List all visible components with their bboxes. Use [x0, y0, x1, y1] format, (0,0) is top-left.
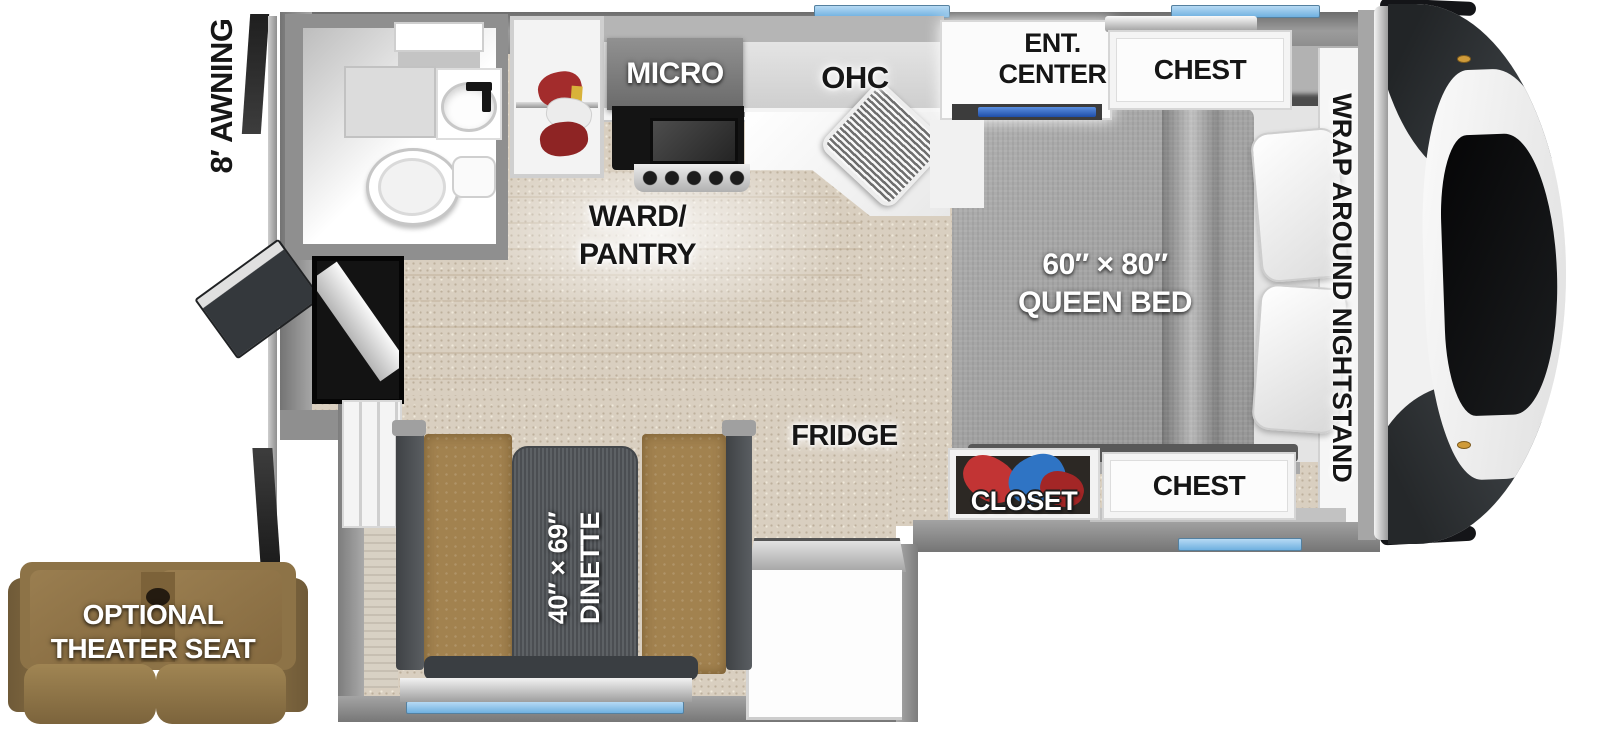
ent-center-accent — [978, 107, 1096, 117]
theater-line2: THEATER SEAT — [51, 633, 256, 664]
slideout-step-fascia — [400, 678, 692, 702]
theater-seat-bottom-cushion — [24, 664, 156, 724]
theater-line1: OPTIONAL — [83, 599, 224, 630]
dinette-name-text: DINETTE — [575, 512, 605, 624]
ent-line2: CENTER — [998, 59, 1106, 89]
dinette-bench-back — [396, 428, 424, 670]
bathroom-cabinet — [394, 22, 484, 52]
toilet-seat — [378, 158, 446, 216]
ohc-label: OHC — [800, 60, 910, 96]
ent-center-label: ENT. CENTER — [985, 28, 1120, 90]
ward-pantry-line1: WARD/ — [589, 200, 687, 233]
fridge — [746, 570, 902, 720]
awning-arm-bottom — [252, 448, 281, 580]
entry-side-panel — [342, 400, 402, 528]
toilet-tank — [452, 156, 496, 198]
dinette-bench — [424, 434, 512, 674]
bed-name-text: QUEEN BED — [1018, 286, 1192, 319]
theater-seat-bottom-cushion — [156, 664, 286, 724]
chest-top-label: CHEST — [1154, 54, 1246, 86]
wall-bottom-bedroom — [913, 520, 1380, 552]
dinette-label: 40″ × 69″ DINETTE — [542, 458, 608, 678]
theater-seat-label: OPTIONAL THEATER SEAT — [18, 598, 288, 665]
microwave: MICRO — [607, 38, 743, 110]
closet-label: CLOSET — [948, 486, 1100, 517]
slideout-step-dark — [424, 656, 698, 680]
dinette-size-text: 40″ × 69″ — [543, 512, 573, 624]
bench-arm-cap — [722, 420, 756, 436]
chest-bottom: CHEST — [1102, 452, 1296, 520]
dinette-bench-back — [726, 428, 752, 670]
ward-pantry-line2: PANTRY — [579, 238, 696, 271]
awning-arm-top — [242, 14, 269, 134]
chest-bottom-label: CHEST — [1153, 470, 1245, 502]
fridge-top — [748, 538, 906, 572]
stove-burners — [634, 164, 750, 192]
window-bottom-bedroom — [1178, 538, 1302, 551]
chest-top: CHEST — [1108, 30, 1292, 110]
ent-line1: ENT. — [1024, 28, 1081, 58]
fridge-label: FRIDGE — [772, 420, 917, 453]
queen-bed-label: 60″ × 80″ QUEEN BED — [1002, 246, 1208, 321]
micro-label: MICRO — [626, 57, 724, 92]
window-dinette — [406, 701, 684, 714]
front-cap — [1388, 4, 1566, 544]
entry-stairwell — [312, 256, 404, 404]
bench-arm-cap — [392, 420, 426, 436]
rv-floorplan: 8′ AWNING WARD/ PANTRY MIC — [0, 0, 1600, 738]
bathroom-faucet-handle — [482, 88, 491, 112]
nightstand-label: WRAP AROUND NIGHTSTAND — [1327, 48, 1357, 528]
oven-window — [650, 118, 738, 164]
bed-size-text: 60″ × 80″ — [1042, 248, 1167, 281]
entertainment-center-side — [930, 120, 984, 208]
wall-connector — [280, 410, 344, 440]
awning-label: 8′ AWNING — [204, 6, 240, 186]
entry-step — [312, 262, 404, 382]
bathroom-counter — [344, 66, 436, 138]
dinette-bench — [642, 434, 726, 674]
ward-pantry-label: WARD/ PANTRY — [560, 198, 715, 273]
